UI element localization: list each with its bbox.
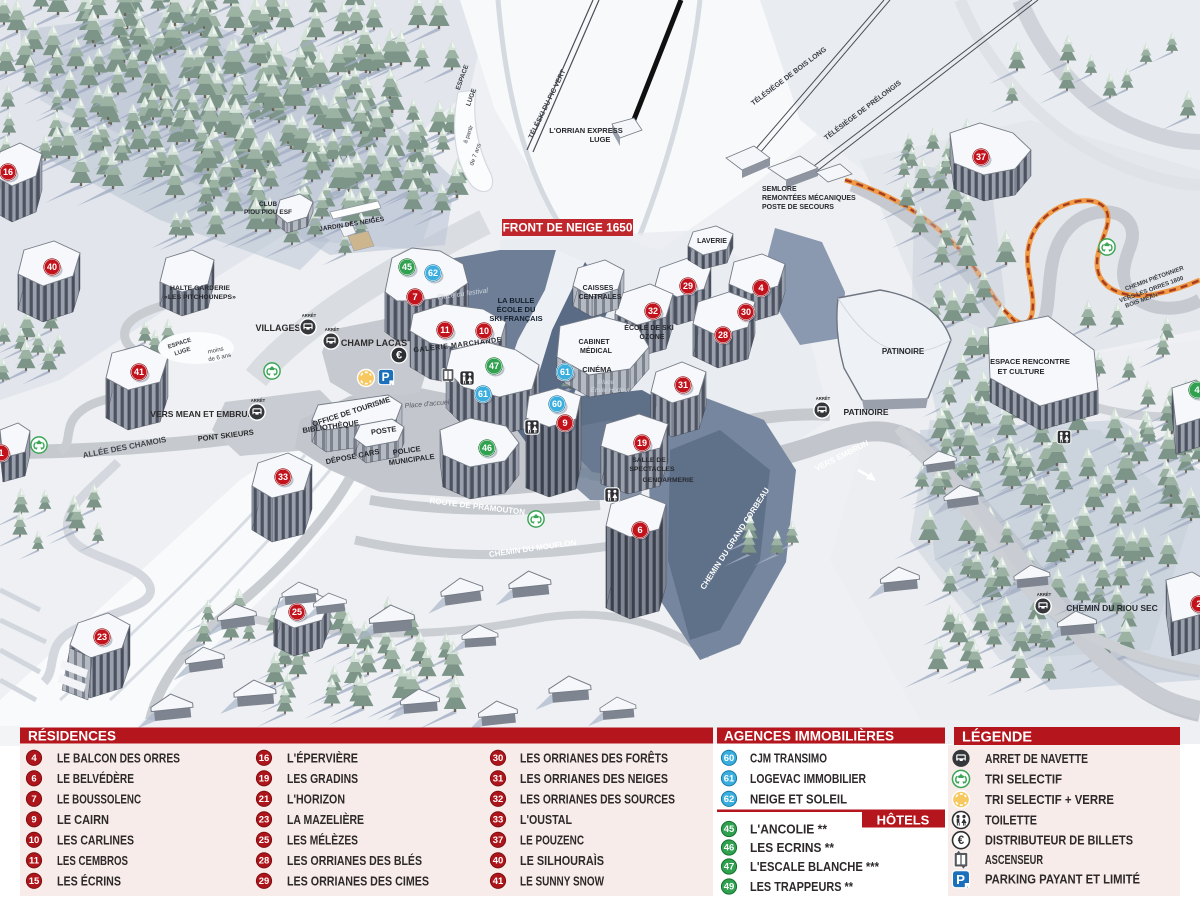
svg-text:LES TRAPPEURS **: LES TRAPPEURS ** (750, 879, 854, 894)
svg-text:L'HORIZON: L'HORIZON (287, 791, 345, 806)
svg-text:LES ORRIANES DES BLÉS: LES ORRIANES DES BLÉS (287, 853, 422, 868)
svg-text:ASCENSEUR: ASCENSEUR (985, 852, 1043, 867)
svg-text:29: 29 (259, 876, 270, 887)
svg-text:16: 16 (3, 167, 13, 177)
svg-text:LE BALCON DES ORRES: LE BALCON DES ORRES (57, 750, 180, 765)
svg-text:LES CEMBROS: LES CEMBROS (57, 853, 128, 868)
svg-text:TRI SELECTIF + VERRE: TRI SELECTIF + VERRE (985, 792, 1114, 807)
svg-text:ARRÊT: ARRÊT (325, 327, 340, 332)
svg-text:7: 7 (412, 292, 417, 303)
svg-text:LOGEVAC IMMOBILIER: LOGEVAC IMMOBILIER (750, 771, 866, 786)
svg-text:VILLAGES: VILLAGES (255, 323, 300, 333)
svg-text:4: 4 (1194, 385, 1200, 396)
svg-text:7: 7 (31, 794, 36, 805)
svg-text:CENTRALES: CENTRALES (579, 294, 622, 301)
svg-text:15: 15 (29, 876, 40, 887)
svg-text:P: P (956, 872, 965, 887)
svg-text:47: 47 (724, 862, 735, 873)
svg-text:33: 33 (493, 815, 504, 826)
svg-text:REMONTÉES MÉCANIQUES: REMONTÉES MÉCANIQUES (762, 193, 856, 202)
svg-text:LE CAIRN: LE CAIRN (57, 812, 109, 827)
svg-text:40: 40 (493, 856, 504, 867)
svg-text:ARRÊT: ARRÊT (302, 313, 317, 318)
svg-text:19: 19 (637, 438, 647, 448)
svg-text:DISTRIBUTEUR DE BILLETS: DISTRIBUTEUR DE BILLETS (985, 833, 1133, 848)
svg-text:25: 25 (292, 607, 302, 617)
svg-text:LUGE: LUGE (590, 135, 611, 144)
svg-text:.: . (391, 380, 392, 385)
svg-text:2: 2 (1196, 599, 1200, 610)
svg-text:ESPACE RENCONTRE: ESPACE RENCONTRE (990, 357, 1070, 366)
svg-text:LAVERIE: LAVERIE (697, 238, 727, 245)
svg-text:46: 46 (482, 443, 492, 453)
svg-text:16: 16 (259, 753, 270, 764)
svg-text:37: 37 (493, 835, 504, 846)
svg-text:SPECTACLES: SPECTACLES (629, 466, 675, 473)
svg-text:45: 45 (402, 262, 412, 272)
svg-text:PATINOIRE: PATINOIRE (882, 347, 925, 356)
svg-text:CINÉMA: CINÉMA (582, 365, 612, 374)
svg-text:PIOU PIOU ESF: PIOU PIOU ESF (244, 209, 292, 216)
svg-text:60: 60 (724, 753, 735, 764)
svg-text:28: 28 (259, 856, 270, 867)
svg-text:LE BELVÉDÈRE: LE BELVÉDÈRE (57, 771, 134, 786)
svg-text:30: 30 (741, 307, 751, 317)
svg-text:Emile Hodoul: Emile Hodoul (591, 387, 630, 394)
svg-text:LES MÉLÈZES: LES MÉLÈZES (287, 832, 358, 847)
svg-text:41: 41 (134, 367, 144, 377)
svg-text:61: 61 (560, 367, 570, 377)
svg-text:32: 32 (493, 794, 504, 805)
svg-text:47: 47 (489, 361, 499, 371)
svg-text:6: 6 (637, 525, 642, 536)
svg-text:28: 28 (718, 330, 728, 340)
svg-text:LE BOUSSOLENC: LE BOUSSOLENC (57, 791, 141, 806)
svg-text:LÉGENDE: LÉGENDE (962, 729, 1032, 746)
svg-text:€: € (958, 835, 965, 847)
svg-text:L'ANCOLIE **: L'ANCOLIE ** (750, 822, 828, 837)
svg-text:9: 9 (31, 815, 36, 826)
svg-text:LES ÉCRINS: LES ÉCRINS (57, 873, 121, 888)
svg-text:61: 61 (478, 389, 488, 399)
svg-text:TRI SELECTIF: TRI SELECTIF (985, 771, 1062, 786)
svg-text:62: 62 (724, 794, 735, 805)
svg-text:LA MAZELIÈRE: LA MAZELIÈRE (287, 812, 364, 827)
svg-text:LES ECRINS **: LES ECRINS ** (750, 840, 835, 855)
svg-text:CHAMP LACAS: CHAMP LACAS (341, 338, 407, 348)
svg-text:4: 4 (758, 283, 764, 294)
svg-text:Place: Place (598, 379, 615, 386)
svg-text:L'ORRIAN EXPRESS: L'ORRIAN EXPRESS (549, 126, 622, 135)
svg-text:23: 23 (259, 815, 270, 826)
svg-text:33: 33 (278, 472, 288, 482)
svg-text:61: 61 (724, 774, 735, 785)
svg-text:11: 11 (440, 325, 450, 335)
svg-text:40: 40 (47, 262, 57, 272)
svg-text:TOILETTE: TOILETTE (985, 813, 1037, 828)
svg-text:11: 11 (29, 856, 40, 867)
svg-text:LA BULLE: LA BULLE (498, 296, 535, 305)
svg-text:L'ESCALE BLANCHE ***: L'ESCALE BLANCHE *** (750, 859, 880, 874)
svg-text:49: 49 (724, 882, 735, 893)
svg-text:CAISSES: CAISSES (583, 285, 614, 292)
svg-text:ET CULTURE: ET CULTURE (998, 367, 1045, 376)
svg-text:PATINOIRE: PATINOIRE (843, 407, 888, 417)
svg-text:4: 4 (31, 753, 37, 764)
svg-text:6: 6 (31, 774, 36, 785)
svg-text:32: 32 (648, 306, 658, 316)
svg-text:L'OUSTAL: L'OUSTAL (520, 812, 572, 827)
svg-text:SKI FRANÇAIS: SKI FRANÇAIS (489, 314, 542, 323)
svg-text:HÔTELS: HÔTELS (877, 813, 930, 828)
svg-text:46: 46 (724, 843, 735, 854)
svg-text:ARRÊT: ARRÊT (251, 398, 266, 403)
svg-text:MÉDICAL: MÉDICAL (580, 346, 613, 355)
svg-text:NEIGE ET SOLEIL: NEIGE ET SOLEIL (750, 791, 847, 806)
svg-text:SALLE DE: SALLE DE (632, 457, 666, 464)
svg-text:«LES PITCHOUNEPS»: «LES PITCHOUNEPS» (164, 294, 236, 301)
svg-text:€: € (396, 350, 402, 362)
svg-text:37: 37 (976, 152, 986, 162)
svg-text:ÉCOLE DU: ÉCOLE DU (497, 305, 536, 314)
svg-text:RÉSIDENCES: RÉSIDENCES (28, 728, 116, 744)
svg-text:25: 25 (259, 835, 270, 846)
svg-text:9: 9 (562, 418, 567, 429)
svg-text:ARRÊT: ARRÊT (1037, 592, 1052, 597)
svg-text:LE SUNNY SNOW: LE SUNNY SNOW (520, 873, 605, 888)
svg-text:CHEMIN DU RIOU SEC: CHEMIN DU RIOU SEC (1066, 603, 1158, 613)
svg-text:30: 30 (493, 753, 504, 764)
svg-text:LES ORRIANES DES NEIGES: LES ORRIANES DES NEIGES (520, 771, 668, 786)
svg-text:P: P (382, 370, 390, 384)
svg-text:FRONT DE NEIGE 1650: FRONT DE NEIGE 1650 (503, 221, 633, 235)
svg-text:GENDARMERIE: GENDARMERIE (643, 477, 694, 484)
svg-text:SEMLORE: SEMLORE (762, 186, 797, 193)
svg-text:62: 62 (428, 268, 438, 278)
svg-text:OZONE: OZONE (640, 334, 665, 341)
svg-text:LES CARLINES: LES CARLINES (57, 832, 134, 847)
svg-text:19: 19 (259, 774, 270, 785)
svg-text:VERS MEAN ET EMBRUN: VERS MEAN ET EMBRUN (150, 409, 253, 419)
svg-text:POSTE DE SECOURS: POSTE DE SECOURS (762, 204, 834, 211)
svg-text:PARKING PAYANT ET LIMITÉ: PARKING PAYANT ET LIMITÉ (985, 872, 1140, 887)
svg-text:LES GRADINS: LES GRADINS (287, 771, 358, 786)
svg-text:45: 45 (724, 824, 735, 835)
svg-text:60: 60 (552, 399, 562, 409)
svg-text:HALTE GARDERIE: HALTE GARDERIE (170, 285, 230, 292)
svg-text:23: 23 (97, 632, 107, 642)
svg-text:LE POUZENC: LE POUZENC (520, 832, 584, 847)
svg-text:10: 10 (479, 326, 489, 336)
svg-text:CJM TRANSIMO: CJM TRANSIMO (750, 750, 827, 765)
svg-text:31: 31 (493, 774, 504, 785)
svg-text:AGENCES IMMOBILIÈRES: AGENCES IMMOBILIÈRES (724, 728, 894, 744)
svg-text:21: 21 (259, 794, 270, 805)
svg-text:41: 41 (493, 876, 504, 887)
svg-text:LES ORRIANES DES CIMES: LES ORRIANES DES CIMES (287, 873, 429, 888)
svg-text:L'ÉPERVIÈRE: L'ÉPERVIÈRE (287, 750, 358, 765)
svg-text:CLUB: CLUB (259, 201, 277, 208)
svg-text:10: 10 (29, 835, 40, 846)
svg-text:31: 31 (678, 380, 688, 390)
svg-text:CABINET: CABINET (578, 339, 610, 346)
svg-text:LE SILHOURAÌS: LE SILHOURAÌS (520, 853, 604, 868)
svg-text:LES ORRIANES DES SOURCES: LES ORRIANES DES SOURCES (520, 791, 675, 806)
svg-text:LES ORRIANES DES FORÊTS: LES ORRIANES DES FORÊTS (520, 750, 668, 765)
svg-text:ARRÊT: ARRÊT (816, 396, 831, 401)
svg-text:ARRET DE NAVETTE: ARRET DE NAVETTE (985, 751, 1088, 766)
svg-text:ÉCOLE DE SKI: ÉCOLE DE SKI (624, 323, 673, 332)
svg-text:29: 29 (683, 281, 693, 291)
